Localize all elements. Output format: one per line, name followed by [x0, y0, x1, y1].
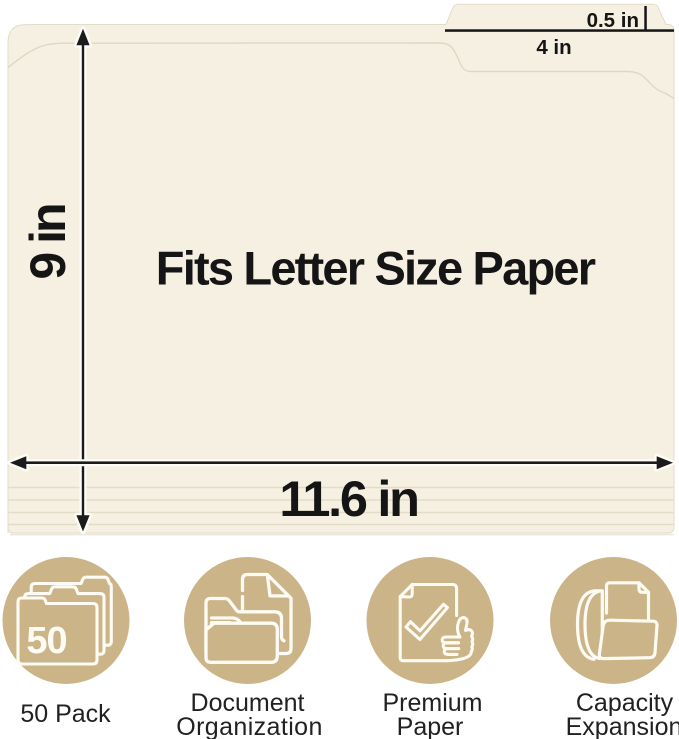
- svg-text:Organization: Organization: [176, 713, 323, 739]
- svg-text:Paper: Paper: [397, 713, 464, 739]
- svg-text:4 in: 4 in: [536, 36, 571, 59]
- svg-text:Fits Letter Size Paper: Fits Letter Size Paper: [156, 242, 596, 295]
- svg-text:11.6 in: 11.6 in: [279, 470, 417, 527]
- svg-text:0.5 in: 0.5 in: [587, 9, 639, 32]
- svg-text:Expansion: Expansion: [566, 713, 679, 739]
- svg-text:50 Pack: 50 Pack: [20, 700, 111, 728]
- svg-text:9 in: 9 in: [20, 205, 76, 280]
- svg-text:50: 50: [26, 620, 66, 662]
